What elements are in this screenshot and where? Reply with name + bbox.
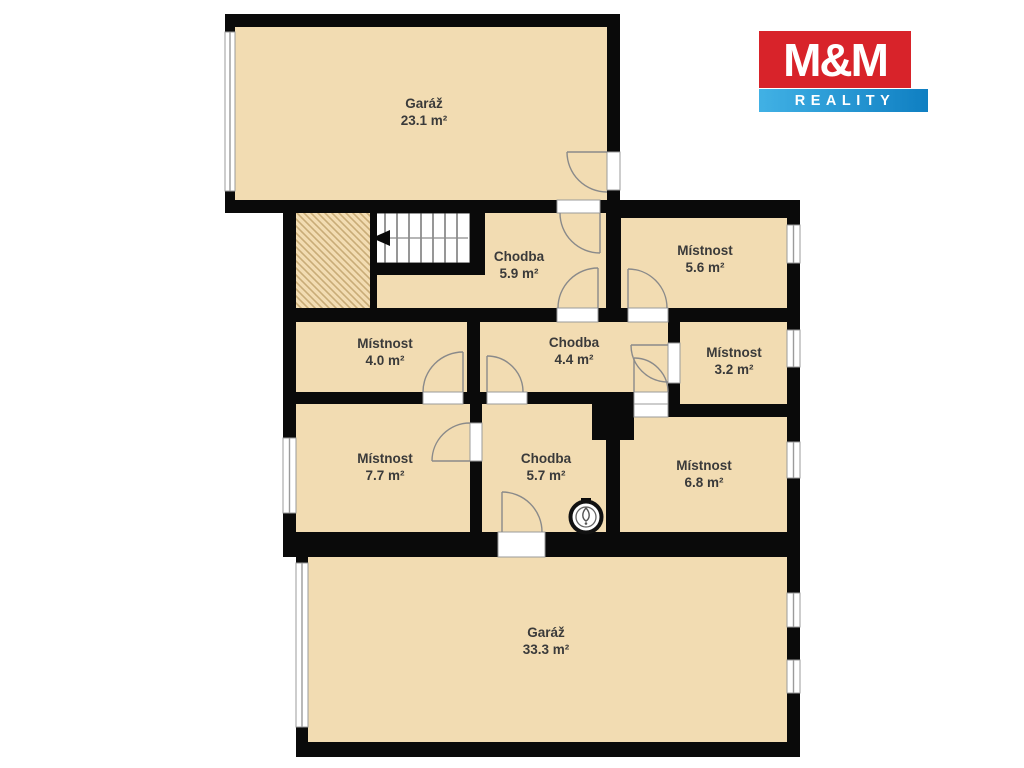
room-name: Místnost	[706, 345, 762, 360]
room-name: Chodba	[521, 451, 572, 466]
window	[283, 438, 296, 513]
under-stairs-hatched-area	[296, 213, 370, 308]
window	[787, 442, 800, 478]
logo-brand-box: M&M	[759, 31, 911, 88]
floor-plan-drawing: Garáž 23.1 m² Chodba 5.9 m² Místnost 5.6…	[0, 0, 1024, 768]
window	[787, 593, 800, 627]
window	[787, 660, 800, 693]
door-threshold	[487, 392, 527, 404]
room-name: Chodba	[494, 249, 545, 264]
door-threshold	[634, 404, 668, 417]
door-threshold	[628, 308, 668, 322]
wall-segment	[592, 404, 634, 440]
wall-segment	[606, 440, 620, 532]
window	[296, 563, 308, 727]
wall-segment	[225, 14, 235, 32]
logo-brand-text: M&M	[783, 33, 887, 87]
room-area: 3.2 m²	[714, 362, 754, 377]
wall-segment	[606, 213, 621, 322]
room-area: 7.7 m²	[365, 468, 405, 483]
door-threshold	[557, 308, 598, 322]
room-area: 5.6 m²	[685, 260, 725, 275]
wall-segment	[296, 742, 800, 757]
agency-logo: M&M REALITY	[759, 31, 928, 112]
logo-tagline-bar: REALITY	[759, 89, 928, 112]
door-threshold	[423, 392, 463, 404]
window	[225, 32, 235, 191]
room-area: 4.4 m²	[554, 352, 594, 367]
wall-segment	[470, 213, 485, 275]
room-name: Místnost	[357, 451, 413, 466]
wall-segment	[225, 14, 620, 27]
window	[787, 330, 800, 367]
staircase	[372, 213, 470, 263]
wall-segment	[467, 322, 480, 404]
room-area: 6.8 m²	[684, 475, 724, 490]
hall-passage	[377, 275, 470, 308]
room-name: Garáž	[527, 625, 565, 640]
door-threshold	[470, 423, 482, 461]
door-threshold	[668, 343, 680, 383]
wall-segment	[373, 263, 485, 275]
window	[787, 225, 800, 263]
floor-plan-page: Garáž 23.1 m² Chodba 5.9 m² Místnost 5.6…	[0, 0, 1024, 768]
room-name: Místnost	[677, 243, 733, 258]
room-name: Místnost	[676, 458, 732, 473]
room-area: 5.9 m²	[499, 266, 539, 281]
room-name: Garáž	[405, 96, 443, 111]
door-threshold	[607, 152, 620, 190]
room-area: 33.3 m²	[523, 642, 570, 657]
room-area: 23.1 m²	[401, 113, 448, 128]
room-name: Místnost	[357, 336, 413, 351]
room-area: 4.0 m²	[365, 353, 405, 368]
room-name: Chodba	[549, 335, 600, 350]
wall-segment	[620, 200, 800, 218]
door-threshold	[557, 200, 600, 213]
room-area: 5.7 m²	[526, 468, 566, 483]
boiler-icon	[571, 498, 602, 534]
wall-segment	[283, 308, 800, 322]
door-threshold	[634, 392, 668, 404]
room-fills	[235, 27, 787, 742]
logo-tagline-text: REALITY	[795, 93, 896, 109]
door-threshold	[498, 532, 545, 557]
